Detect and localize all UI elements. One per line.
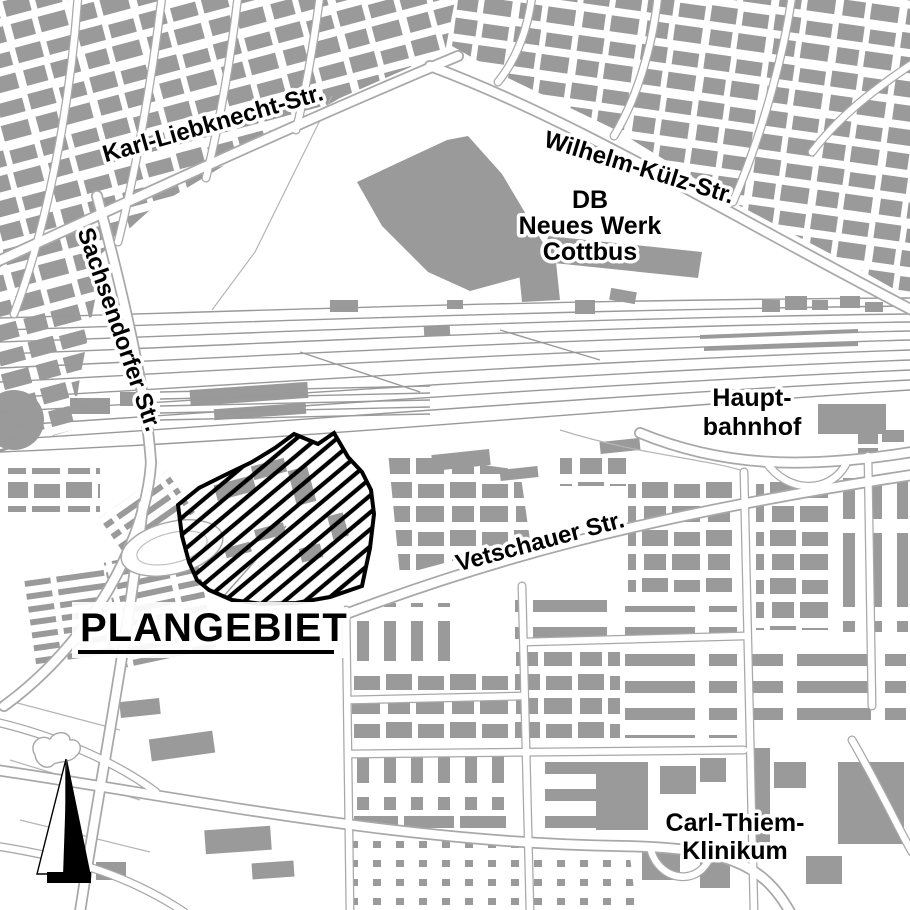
map-canvas: Karl-Liebknecht-Str. Wilhelm-Külz-Str. S… <box>0 0 910 910</box>
plangebiet-title: PLANGEBIET <box>80 606 348 650</box>
label-klinikum-line1: Carl-Thiem- <box>666 809 805 837</box>
label-carl-thiem-klinikum: Carl-Thiem- Klinikum <box>666 809 805 865</box>
label-plangebiet: PLANGEBIET <box>72 602 348 658</box>
label-db-line1: DB <box>572 186 608 214</box>
label-db-line3: Cottbus <box>543 238 637 266</box>
label-db-line2: Neues Werk <box>519 212 662 240</box>
label-hauptbahnhof-line2: bahnhof <box>703 413 802 441</box>
city-map: Karl-Liebknecht-Str. Wilhelm-Külz-Str. S… <box>0 0 910 910</box>
label-hauptbahnhof-line1: Haupt- <box>712 384 791 412</box>
label-klinikum-line2: Klinikum <box>682 837 788 865</box>
label-hauptbahnhof: Haupt- bahnhof <box>703 384 802 441</box>
